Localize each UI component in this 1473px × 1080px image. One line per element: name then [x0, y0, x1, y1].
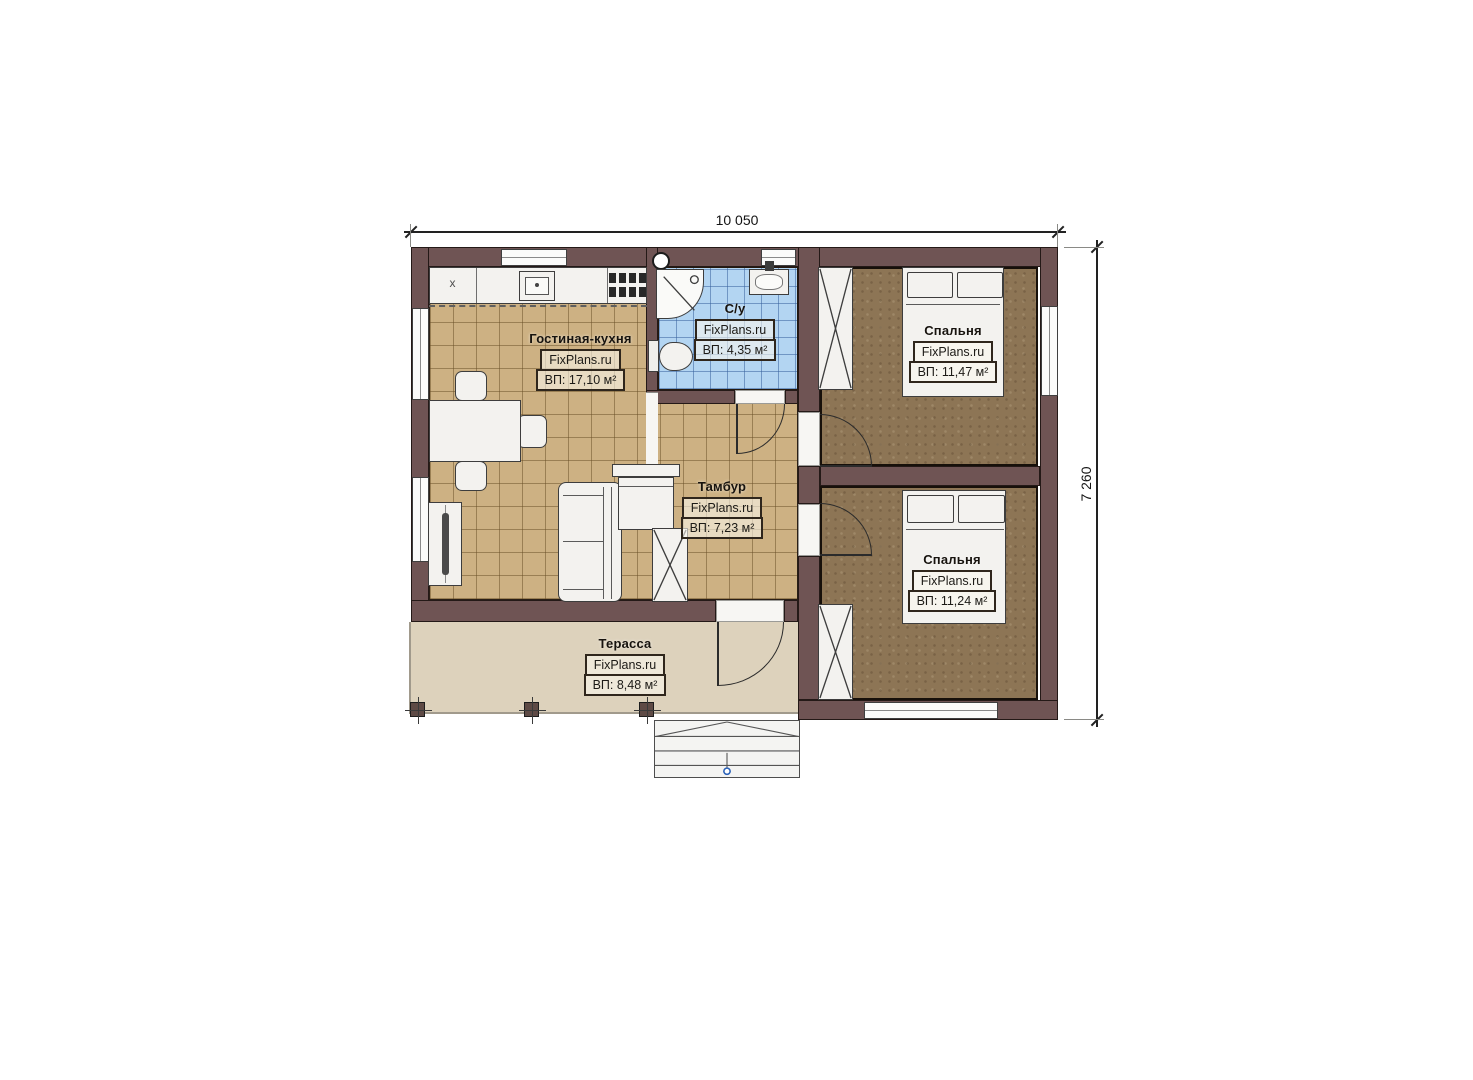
basin-tap	[765, 261, 774, 271]
room-title: Гостиная-кухня	[529, 331, 631, 346]
pillow	[907, 272, 953, 298]
window-bedroom-bottom	[864, 702, 998, 719]
pillow	[958, 495, 1005, 523]
room-title: С/у	[725, 301, 746, 316]
room-label-bathroom: С/у FixPlans.ru ВП: 4,35 м²	[655, 301, 815, 361]
extension-line	[410, 224, 411, 247]
door-opening-bedroom-top	[798, 412, 820, 466]
wardrobe-vestibule	[652, 528, 688, 602]
dimension-label-width: 10 050	[647, 212, 827, 228]
counter-divider	[476, 268, 477, 303]
room-watermark: FixPlans.ru	[540, 349, 621, 371]
room-label-terrace: Терасса FixPlans.ru ВП: 8,48 м²	[545, 636, 705, 696]
wall-vestibule	[798, 556, 820, 700]
pillow	[907, 495, 954, 523]
window-kitchen	[501, 249, 567, 266]
room-area: ВП: 17,10 м²	[536, 369, 626, 391]
floor-plan: x	[0, 0, 1473, 1080]
window-living-1	[412, 308, 429, 400]
terrace-edge-left	[409, 622, 411, 714]
room-watermark: FixPlans.ru	[912, 570, 993, 592]
terrace-edge-bottom	[409, 712, 799, 714]
wall-left	[411, 247, 429, 622]
washbasin	[749, 269, 789, 295]
chair	[517, 415, 547, 448]
room-watermark: FixPlans.ru	[695, 319, 776, 341]
stove-burner	[639, 273, 646, 283]
door-opening-entrance	[716, 600, 784, 622]
chair	[455, 461, 487, 491]
room-label-bedroom-top: Спальня FixPlans.ru ВП: 11,47 м²	[873, 323, 1033, 383]
window-living-2	[412, 477, 429, 562]
chair	[455, 371, 487, 401]
wall-living-bottom	[784, 600, 798, 622]
dining-table	[429, 400, 521, 462]
kitchen-x-marker: x	[429, 276, 476, 290]
window-bedroom-top	[1041, 306, 1058, 396]
stove-burner	[629, 287, 636, 297]
stove-burner	[609, 273, 616, 283]
stove-burner	[629, 273, 636, 283]
room-title: Тамбур	[698, 479, 746, 494]
sofa	[558, 482, 622, 602]
wardrobe-bedroom-top	[818, 267, 853, 390]
entrance-steps	[654, 720, 800, 778]
room-label-bedroom-bottom: Спальня FixPlans.ru ВП: 11,24 м²	[872, 552, 1032, 612]
terrace-post	[639, 702, 654, 717]
room-area: ВП: 11,24 м²	[908, 590, 997, 612]
vent-circle	[652, 252, 670, 270]
radiator	[428, 502, 462, 586]
wall-bath-bottom	[646, 390, 735, 404]
room-area: ВП: 4,35 м²	[694, 339, 777, 361]
wardrobe-x-icon	[819, 268, 852, 389]
wardrobe-bedroom-bottom	[818, 604, 853, 700]
room-title: Спальня	[924, 323, 982, 338]
wall-bath-bottom	[785, 390, 798, 404]
wall-bedroom-divider	[820, 466, 1040, 486]
terrace-post	[524, 702, 539, 717]
room-label-vestibule: Тамбур FixPlans.ru ВП: 7,23 м²	[642, 479, 802, 539]
counter-edge-dashed	[429, 305, 647, 307]
passage-living-vestibule	[646, 392, 658, 468]
stove-burner	[619, 287, 626, 297]
room-title: Терасса	[599, 636, 652, 651]
room-area: ВП: 7,23 м²	[681, 517, 764, 539]
steps-icon	[655, 721, 799, 777]
dimension-label-height: 7 260	[1078, 434, 1096, 534]
extension-line	[1064, 247, 1104, 248]
counter-divider	[607, 268, 608, 303]
stove-burner	[609, 287, 616, 297]
dimension-line-top	[404, 231, 1066, 233]
door-opening-bathroom	[735, 390, 785, 404]
room-watermark: FixPlans.ru	[682, 497, 763, 519]
dimension-line-right	[1096, 240, 1098, 727]
room-watermark: FixPlans.ru	[913, 341, 994, 363]
wardrobe-x-icon	[653, 529, 687, 601]
room-label-living-kitchen: Гостиная-кухня FixPlans.ru ВП: 17,10 м²	[498, 331, 663, 391]
pillow	[957, 272, 1003, 298]
terrace-post	[410, 702, 425, 717]
extension-line	[1057, 224, 1058, 247]
stove-burner	[639, 287, 646, 297]
stove-burner	[619, 273, 626, 283]
wall-living-bottom	[411, 600, 716, 622]
stove-fireplace-cap	[612, 464, 680, 477]
room-watermark: FixPlans.ru	[585, 654, 666, 676]
kitchen-sink	[519, 271, 555, 301]
extension-line	[1064, 719, 1104, 720]
room-area: ВП: 8,48 м²	[584, 674, 667, 696]
room-area: ВП: 11,47 м²	[909, 361, 998, 383]
room-title: Спальня	[923, 552, 981, 567]
wardrobe-x-icon	[819, 605, 852, 699]
